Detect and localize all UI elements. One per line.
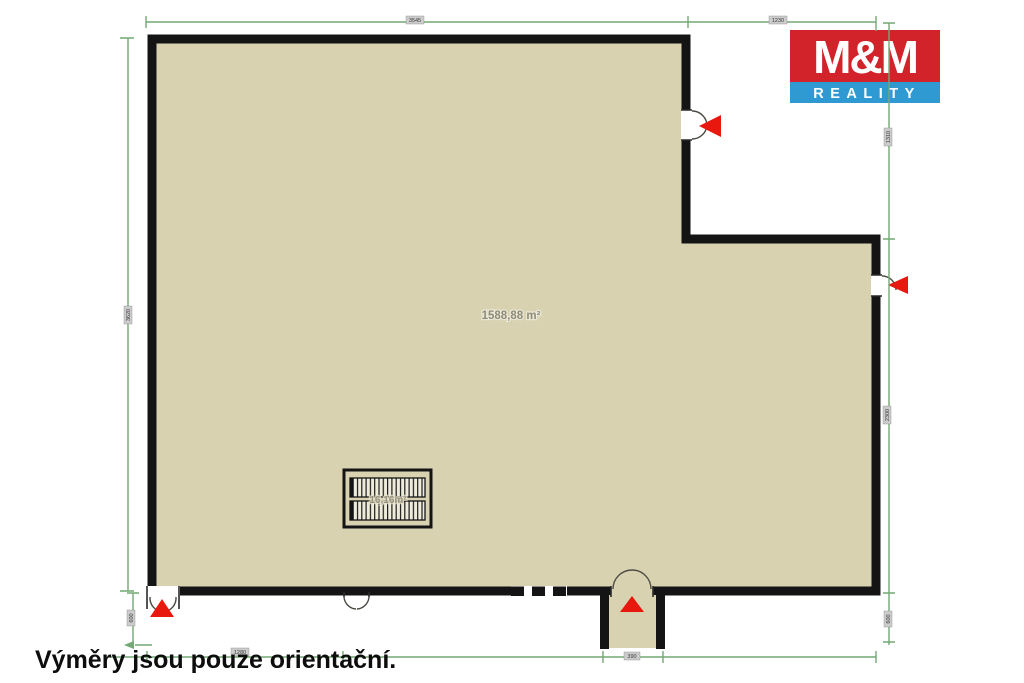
logo-subtitle: REALITY xyxy=(813,86,921,102)
dimension-label: 2300 xyxy=(883,406,891,424)
door-leaf-arc xyxy=(357,597,369,609)
svg-text:3620: 3620 xyxy=(126,309,132,321)
stairs-landing-mark xyxy=(350,501,354,520)
entrance-arrow-icon xyxy=(699,115,721,137)
dimension-label: 1310 xyxy=(884,128,892,146)
door-bottom-left xyxy=(146,586,180,617)
stairs-area-label: 16,16m² xyxy=(369,495,407,506)
dimension-label: 390 xyxy=(624,652,640,660)
dimension-line-right xyxy=(883,23,895,645)
svg-text:2300: 2300 xyxy=(885,409,891,421)
door-gap xyxy=(871,275,882,296)
gate-opening xyxy=(511,586,567,597)
dimension-label: 600 xyxy=(127,610,135,626)
door-upper-right xyxy=(681,110,721,140)
svg-text:600: 600 xyxy=(129,613,135,622)
svg-text:1310: 1310 xyxy=(886,131,892,143)
dimension-line-top xyxy=(146,16,876,31)
svg-text:600: 600 xyxy=(886,614,892,623)
mm-reality-logo: M&M REALITY xyxy=(790,30,940,103)
dimension-label: 3545 xyxy=(406,16,424,24)
porch-wall-left xyxy=(600,591,609,649)
dimension-label: 1230 xyxy=(769,16,787,24)
logo-title: M&M xyxy=(813,31,917,83)
dimension-label: 3620 xyxy=(124,306,132,324)
svg-text:3545: 3545 xyxy=(409,18,421,24)
disclaimer-text: Výměry jsou pouze orientační. xyxy=(35,646,396,674)
door-leaf-arc xyxy=(344,597,356,609)
door-gap xyxy=(611,586,653,597)
stairs-landing-mark xyxy=(350,478,354,497)
svg-text:1230: 1230 xyxy=(772,18,784,24)
stairs-block: 16,16m² xyxy=(344,470,431,527)
floor-plan-canvas: 16,16m² 1588,88 m² M&M REALITY 3545 1230 xyxy=(0,0,1024,683)
porch-wall-right xyxy=(656,591,665,649)
svg-text:390: 390 xyxy=(627,654,636,660)
area-label: 1588,88 m² xyxy=(482,310,541,322)
floor-plan-page: 16,16m² 1588,88 m² M&M REALITY 3545 1230 xyxy=(0,0,1024,683)
dimension-label: 600 xyxy=(884,611,892,627)
door-gap xyxy=(146,586,180,597)
door-gap xyxy=(681,110,692,140)
